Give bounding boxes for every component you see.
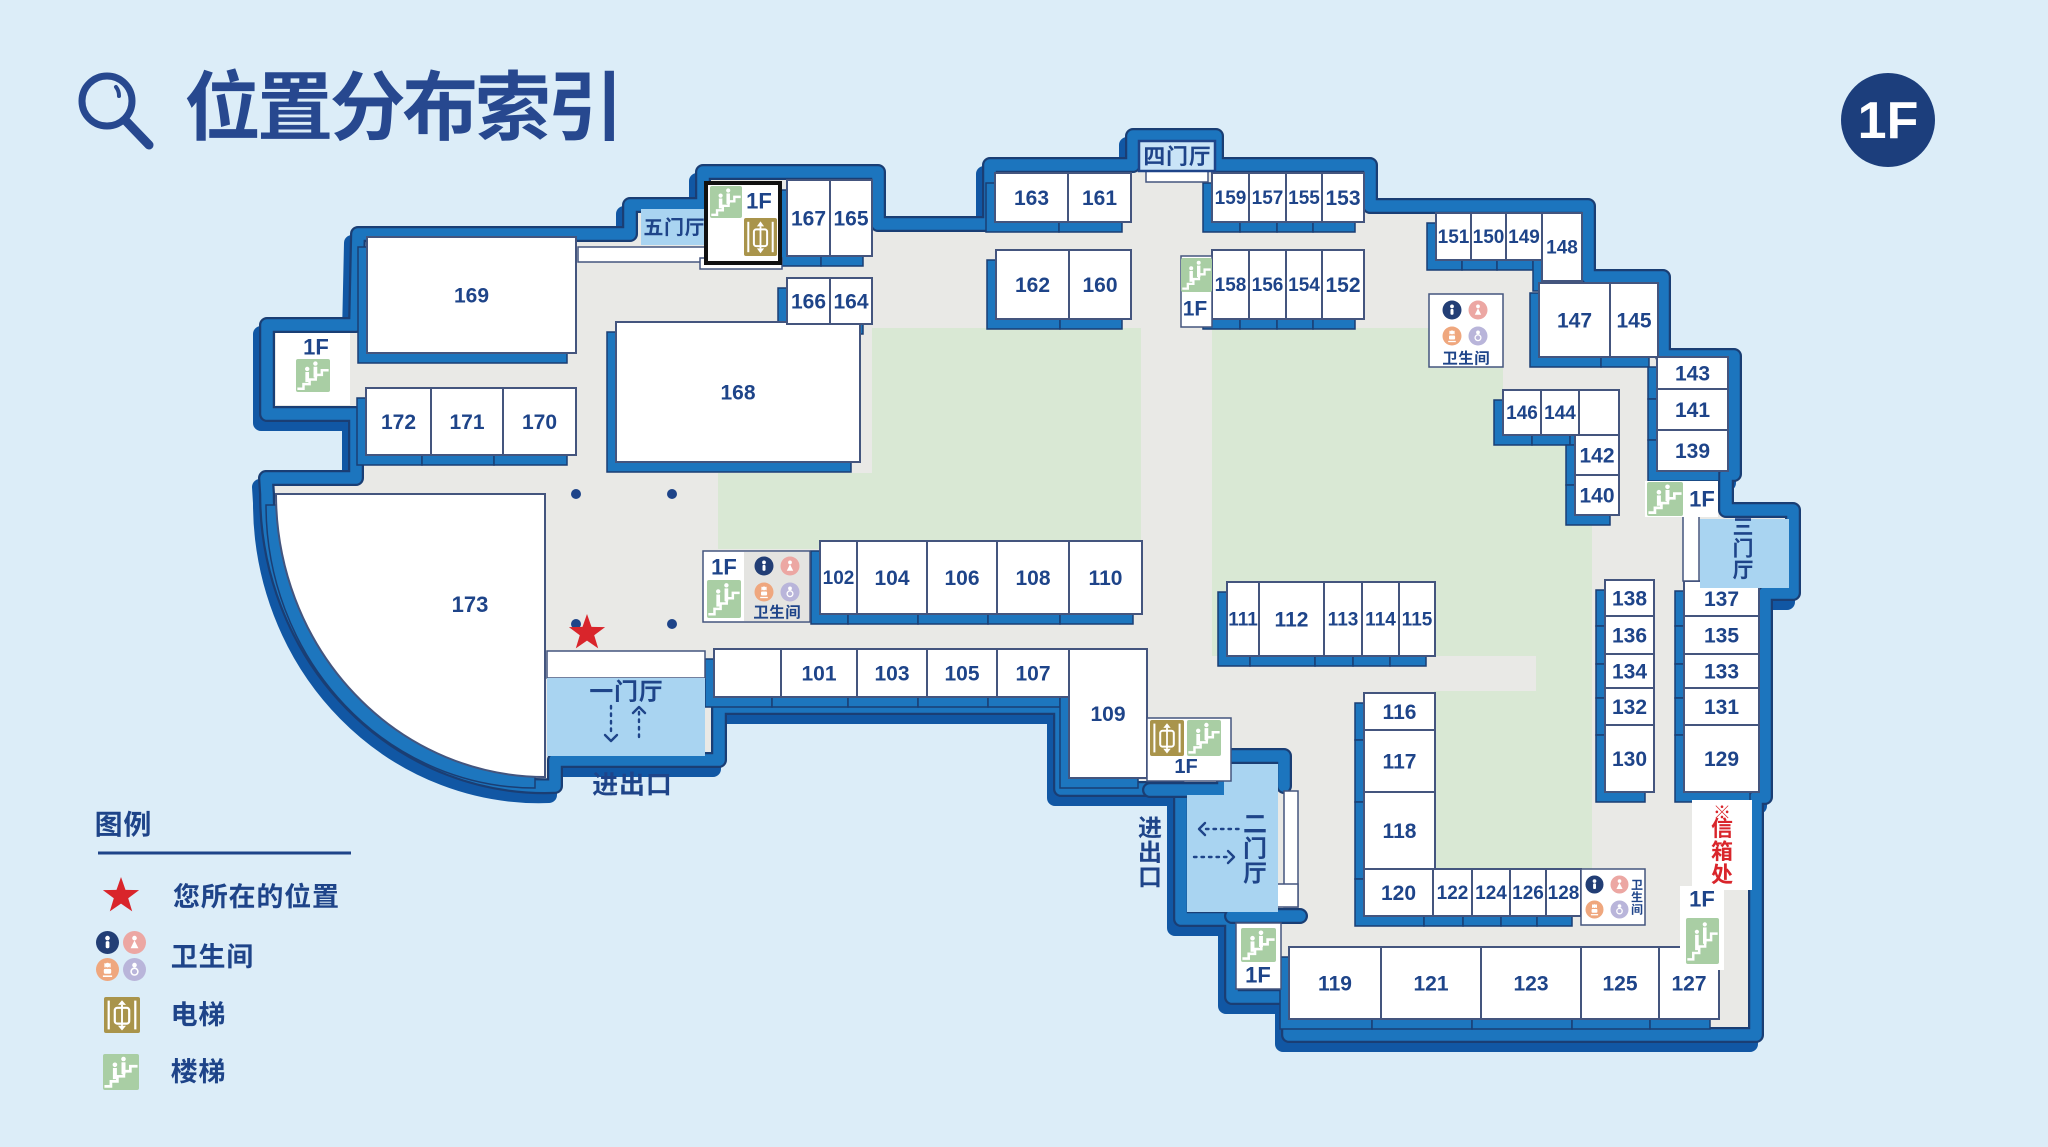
- svg-text:119: 119: [1318, 972, 1352, 995]
- svg-text:170: 170: [522, 411, 557, 434]
- svg-text:150: 150: [1473, 227, 1505, 248]
- svg-text:136: 136: [1612, 624, 1647, 647]
- svg-text:160: 160: [1082, 274, 1117, 297]
- svg-text:162: 162: [1015, 274, 1050, 297]
- svg-text:133: 133: [1704, 660, 1739, 683]
- svg-text:102: 102: [823, 568, 855, 589]
- svg-text:151: 151: [1438, 227, 1470, 248]
- svg-text:115: 115: [1402, 610, 1433, 631]
- svg-text:143: 143: [1675, 362, 1710, 385]
- svg-text:161: 161: [1082, 187, 1117, 210]
- svg-text:1F: 1F: [746, 189, 772, 214]
- svg-text:127: 127: [1671, 972, 1706, 995]
- svg-text:1F: 1F: [1245, 963, 1271, 988]
- svg-text:125: 125: [1602, 972, 1637, 995]
- svg-text:168: 168: [720, 381, 755, 404]
- svg-text:122: 122: [1437, 883, 1469, 904]
- svg-text:109: 109: [1090, 703, 1125, 726]
- svg-text:126: 126: [1512, 883, 1544, 904]
- svg-text:121: 121: [1413, 972, 1448, 995]
- svg-text:146: 146: [1506, 403, 1538, 424]
- svg-text:165: 165: [833, 207, 868, 230]
- svg-text:111: 111: [1228, 610, 1258, 631]
- svg-text:113: 113: [1328, 610, 1359, 631]
- svg-text:152: 152: [1325, 274, 1360, 297]
- svg-text:135: 135: [1704, 624, 1739, 647]
- svg-text:117: 117: [1383, 750, 1417, 773]
- svg-text:166: 166: [791, 290, 826, 313]
- svg-text:101: 101: [801, 662, 836, 685]
- svg-text:159: 159: [1215, 188, 1247, 209]
- svg-text:145: 145: [1616, 309, 1651, 332]
- svg-text:134: 134: [1612, 660, 1647, 683]
- svg-text:1F: 1F: [1183, 297, 1208, 320]
- svg-text:124: 124: [1475, 883, 1507, 904]
- svg-text:158: 158: [1215, 275, 1247, 296]
- svg-text:131: 131: [1704, 696, 1739, 719]
- svg-text:104: 104: [874, 567, 909, 590]
- svg-text:142: 142: [1579, 444, 1614, 467]
- svg-text:156: 156: [1252, 275, 1284, 296]
- svg-text:140: 140: [1579, 484, 1614, 507]
- svg-text:141: 141: [1675, 399, 1710, 422]
- svg-text:139: 139: [1675, 440, 1710, 463]
- svg-text:118: 118: [1383, 820, 1417, 843]
- svg-text:164: 164: [833, 290, 868, 313]
- svg-text:129: 129: [1704, 748, 1739, 771]
- svg-text:123: 123: [1513, 972, 1548, 995]
- svg-text:107: 107: [1015, 662, 1050, 685]
- svg-text:172: 172: [381, 411, 416, 434]
- svg-text:155: 155: [1288, 188, 1320, 209]
- svg-text:1F: 1F: [303, 335, 329, 360]
- svg-text:149: 149: [1508, 227, 1540, 248]
- svg-text:1F: 1F: [711, 555, 737, 580]
- svg-text:128: 128: [1548, 883, 1580, 904]
- svg-text:108: 108: [1015, 567, 1050, 590]
- svg-text:167: 167: [791, 207, 826, 230]
- svg-text:138: 138: [1612, 587, 1647, 610]
- svg-text:112: 112: [1275, 608, 1309, 631]
- svg-text:110: 110: [1089, 567, 1123, 590]
- svg-text:132: 132: [1612, 696, 1647, 719]
- svg-text:120: 120: [1381, 882, 1416, 905]
- svg-text:173: 173: [452, 592, 489, 617]
- svg-text:169: 169: [454, 284, 489, 307]
- svg-text:116: 116: [1383, 701, 1417, 724]
- svg-text:1F: 1F: [1689, 487, 1715, 512]
- svg-text:103: 103: [874, 662, 909, 685]
- svg-text:1F: 1F: [1858, 92, 1919, 150]
- svg-text:130: 130: [1612, 748, 1647, 771]
- svg-text:148: 148: [1546, 238, 1578, 259]
- svg-text:157: 157: [1252, 188, 1284, 209]
- svg-text:114: 114: [1365, 610, 1396, 631]
- svg-text:1F: 1F: [1689, 887, 1715, 912]
- svg-text:147: 147: [1557, 309, 1592, 332]
- svg-text:137: 137: [1704, 588, 1739, 611]
- svg-text:1F: 1F: [1174, 756, 1197, 778]
- svg-text:144: 144: [1544, 403, 1576, 424]
- svg-text:105: 105: [944, 662, 979, 685]
- svg-text:171: 171: [449, 411, 484, 434]
- svg-text:154: 154: [1288, 275, 1320, 296]
- svg-text:163: 163: [1014, 187, 1049, 210]
- svg-text:106: 106: [944, 567, 979, 590]
- svg-text:153: 153: [1325, 187, 1360, 210]
